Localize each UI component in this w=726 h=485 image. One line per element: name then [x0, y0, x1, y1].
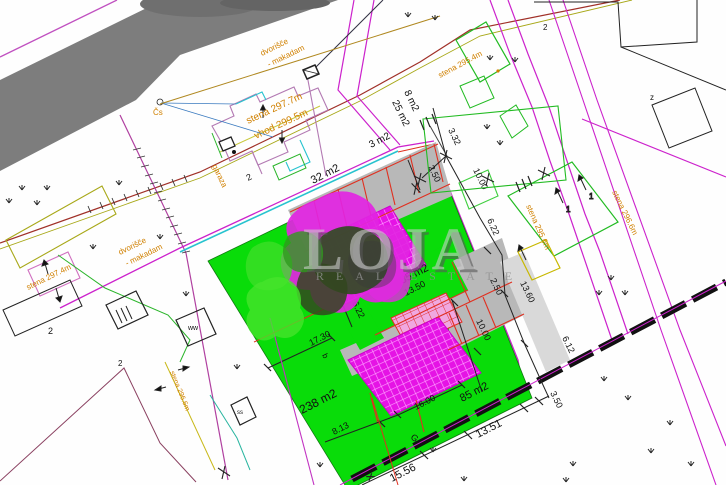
svg-text:2: 2	[543, 23, 548, 32]
svg-text:1: 1	[589, 192, 594, 201]
svg-text:ss: ss	[237, 410, 243, 416]
svg-text:2: 2	[118, 359, 123, 368]
svg-text:REAL ESTATE: REAL ESTATE	[316, 269, 524, 283]
svg-text:Čs: Čs	[153, 108, 163, 117]
svg-text:1: 1	[566, 205, 571, 214]
svg-text:z: z	[650, 93, 654, 102]
svg-text:ww: ww	[187, 325, 199, 332]
svg-text:2: 2	[48, 326, 53, 336]
